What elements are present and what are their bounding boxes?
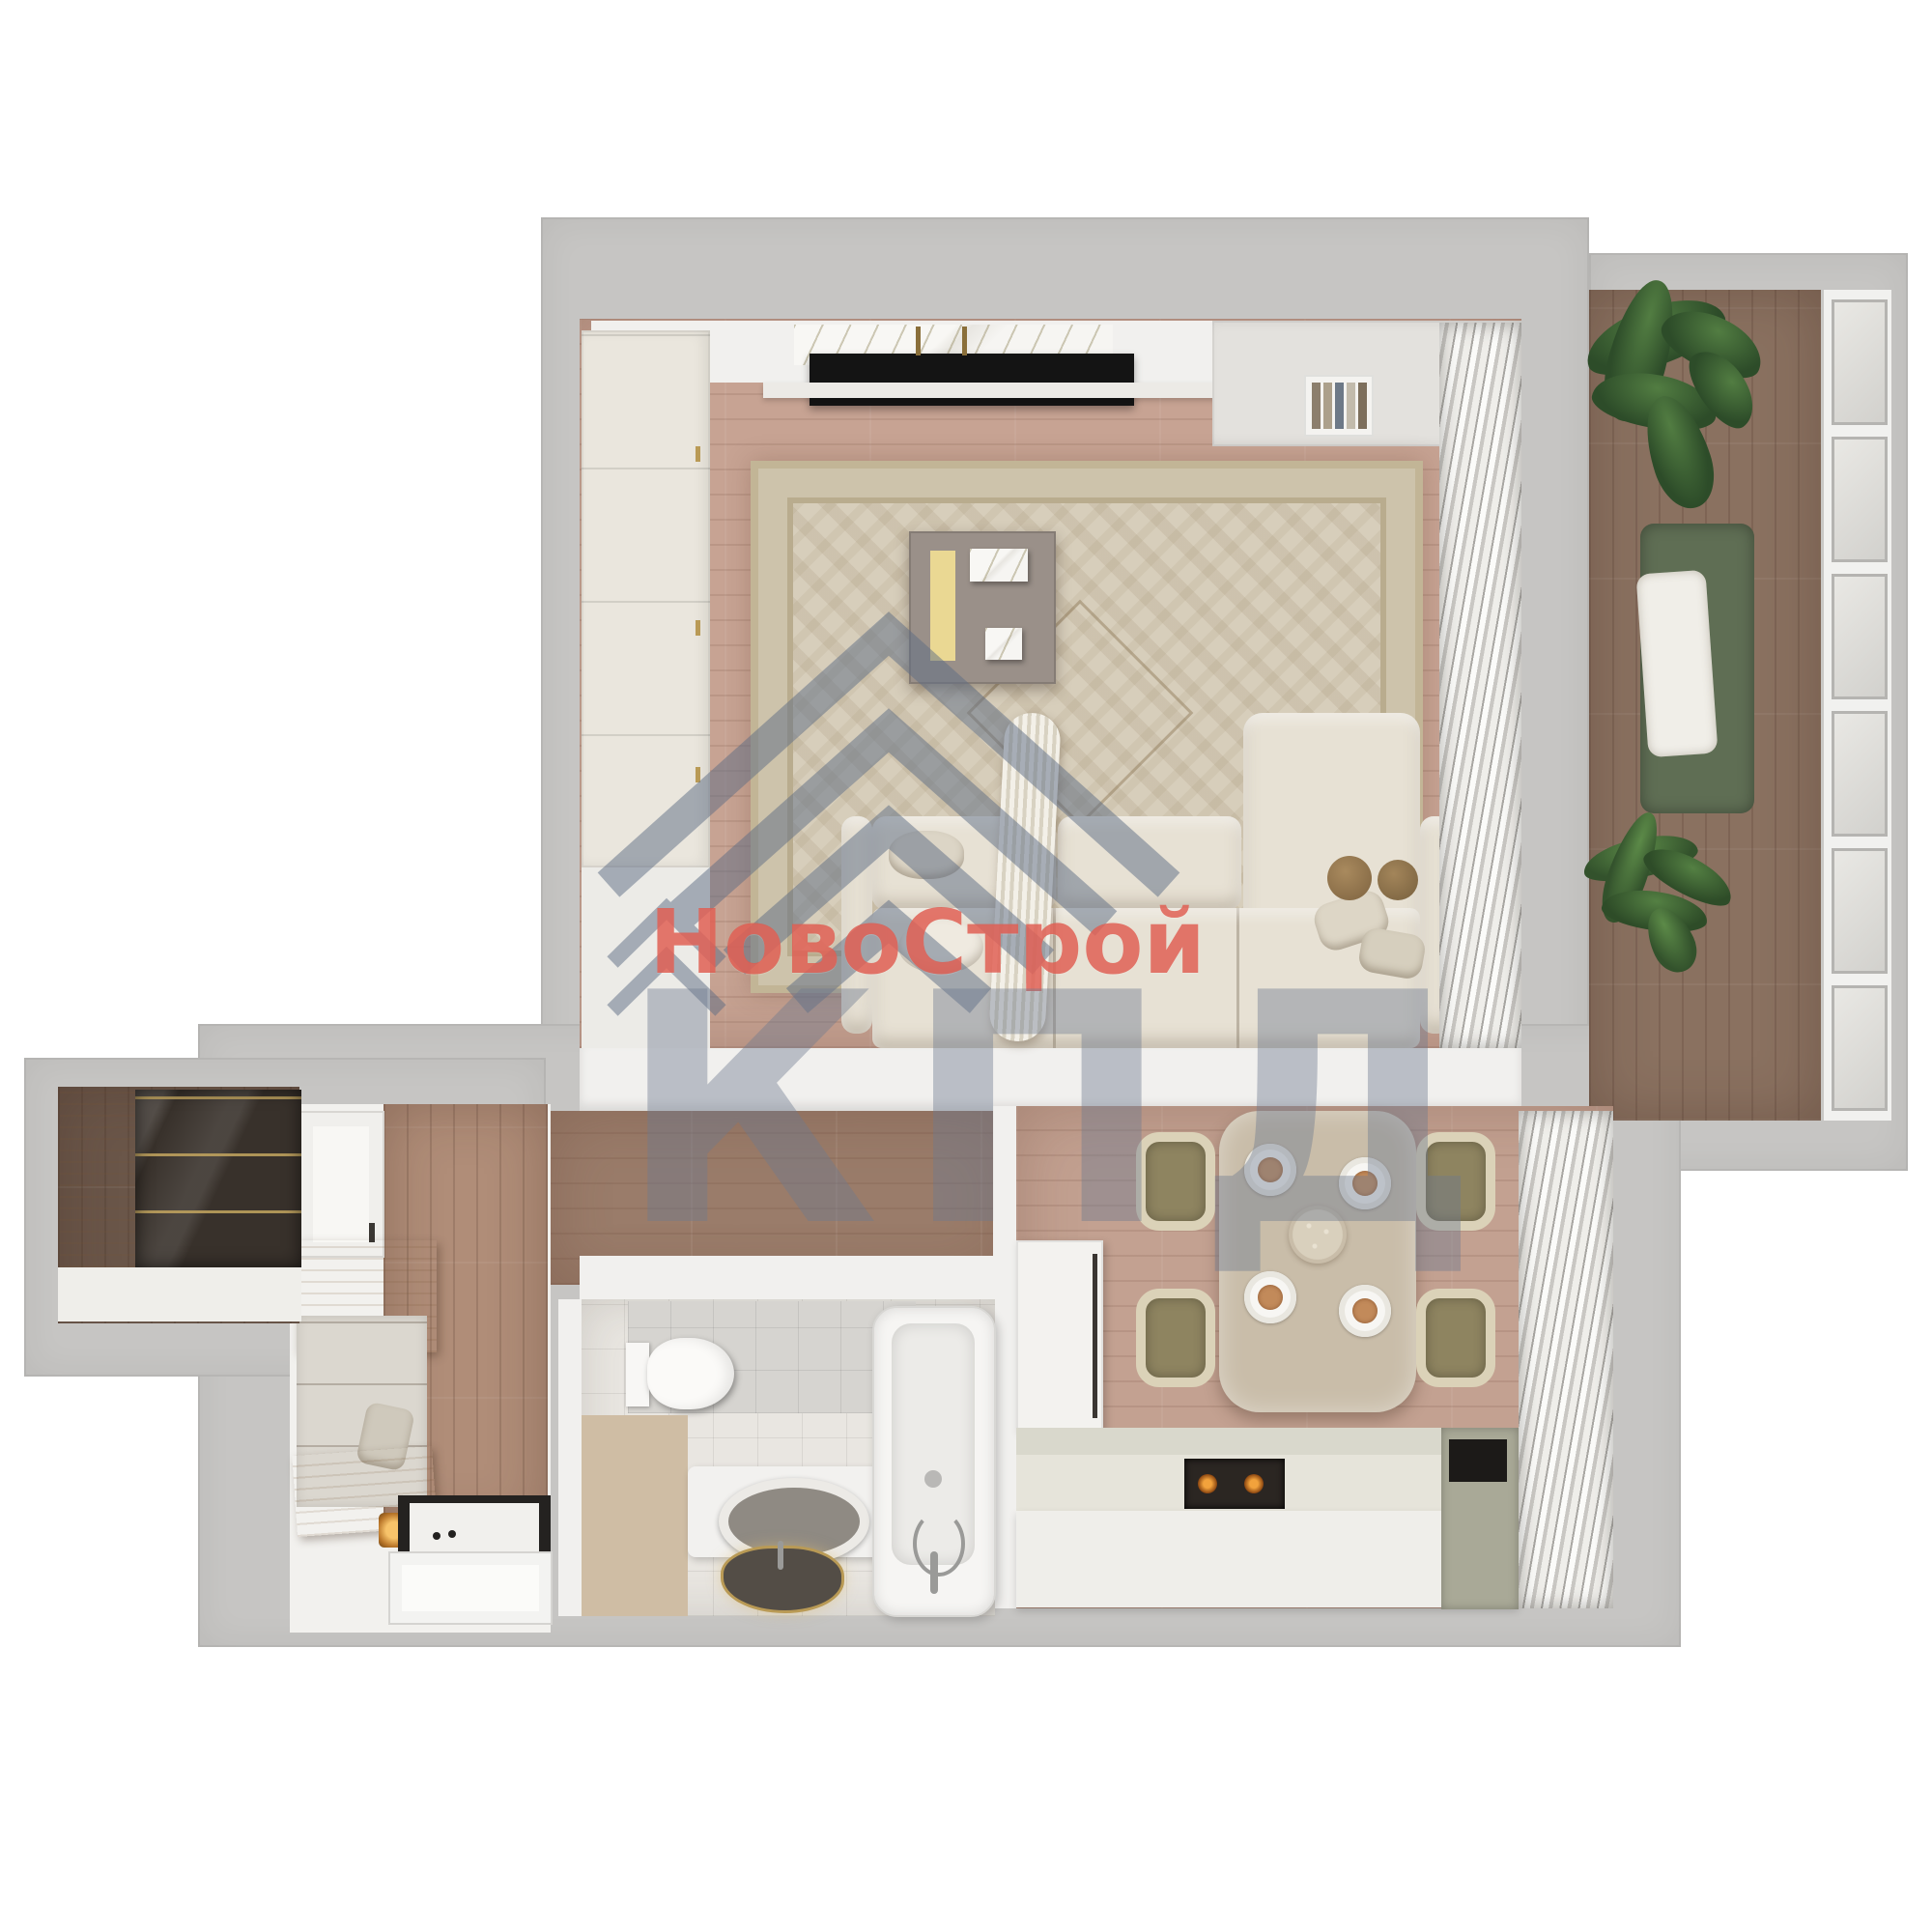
- kitchen-sage-unit: [1441, 1428, 1519, 1609]
- entry-floor: [410, 1503, 539, 1553]
- wardrobe-handle: [696, 767, 700, 782]
- bookshelf: [1304, 375, 1374, 437]
- window-pane: [1832, 437, 1888, 562]
- curtains-living: [1439, 323, 1521, 1048]
- closet-nook-floor: [58, 1267, 301, 1321]
- book: [1358, 383, 1367, 429]
- fridge-column: [1016, 1240, 1103, 1432]
- sofa-back-cushion: [1058, 816, 1241, 910]
- book: [1347, 383, 1355, 429]
- glass-wardrobe-frame: [60, 1090, 135, 1267]
- plate: [1244, 1271, 1296, 1323]
- shower-hose-icon: [913, 1511, 965, 1577]
- living-floor-white-patch: [582, 867, 710, 1048]
- round-pouf-pillow: [1378, 860, 1418, 900]
- interior-door: [298, 1111, 384, 1258]
- candlestick-icon: [962, 327, 967, 355]
- book: [1323, 383, 1332, 429]
- plate: [1339, 1285, 1391, 1337]
- balcony-fern-plant: [1582, 800, 1747, 979]
- coffee-table-tray: [930, 551, 955, 661]
- window-pane: [1832, 985, 1888, 1111]
- floor-plan: НовоСтрой КПД: [0, 0, 1932, 1932]
- balcony-window-wall: [1821, 290, 1891, 1121]
- entry-door: [388, 1551, 553, 1625]
- living-room-bottom-wall: [580, 1048, 1521, 1111]
- bath-faucet-icon: [930, 1551, 938, 1594]
- dining-chair: [1136, 1132, 1215, 1231]
- round-pouf-pillow: [1327, 856, 1372, 900]
- window-pane: [1832, 711, 1888, 837]
- cooktop: [1449, 1439, 1507, 1482]
- bathroom-hall-wall: [558, 1299, 582, 1616]
- plate: [1339, 1157, 1391, 1209]
- wardrobe-handle: [696, 620, 700, 636]
- keys-icon: [448, 1530, 456, 1538]
- corridor-kitchen-wall: [993, 1106, 1016, 1608]
- shower-knob-icon: [924, 1470, 942, 1488]
- sofa-pillow: [889, 831, 964, 879]
- stove: [1184, 1459, 1285, 1509]
- bathroom-travertine-bench: [580, 1415, 688, 1616]
- book: [1312, 383, 1321, 429]
- wardrobe: [582, 330, 710, 867]
- book: [1335, 383, 1344, 429]
- candlestick-icon: [916, 327, 921, 355]
- tv-console: [763, 383, 1246, 398]
- toilet: [647, 1338, 734, 1409]
- sofa-pillow: [898, 920, 983, 974]
- daybed-blanket: [1635, 570, 1718, 758]
- wardrobe-handle: [696, 446, 700, 462]
- dining-chair: [1416, 1132, 1495, 1231]
- door-handle-icon: [369, 1223, 375, 1242]
- table-centerpiece: [1289, 1206, 1347, 1264]
- faucet-icon: [778, 1541, 783, 1570]
- burner-glow: [1198, 1474, 1217, 1493]
- dining-chair: [1416, 1289, 1495, 1387]
- dining-chair: [1136, 1289, 1215, 1387]
- toilet-tank: [626, 1343, 649, 1406]
- sink: [721, 1546, 844, 1613]
- window-pane: [1832, 848, 1888, 974]
- window-pane: [1832, 299, 1888, 425]
- curtains-kitchen: [1519, 1111, 1613, 1608]
- fridge-handle: [1093, 1254, 1097, 1418]
- bathtub: [872, 1306, 996, 1617]
- burner-glow: [1244, 1474, 1264, 1493]
- sofa-armrest: [841, 816, 872, 1034]
- coffee-table-marble-box: [985, 628, 1022, 660]
- keys-icon: [433, 1532, 440, 1540]
- window-pane: [1832, 574, 1888, 699]
- glass-wardrobe: [135, 1090, 301, 1267]
- bathroom-top-wall: [580, 1256, 995, 1302]
- plate: [1244, 1144, 1296, 1196]
- balcony-plant: [1573, 278, 1766, 515]
- coffee-table-marble-box: [970, 549, 1028, 582]
